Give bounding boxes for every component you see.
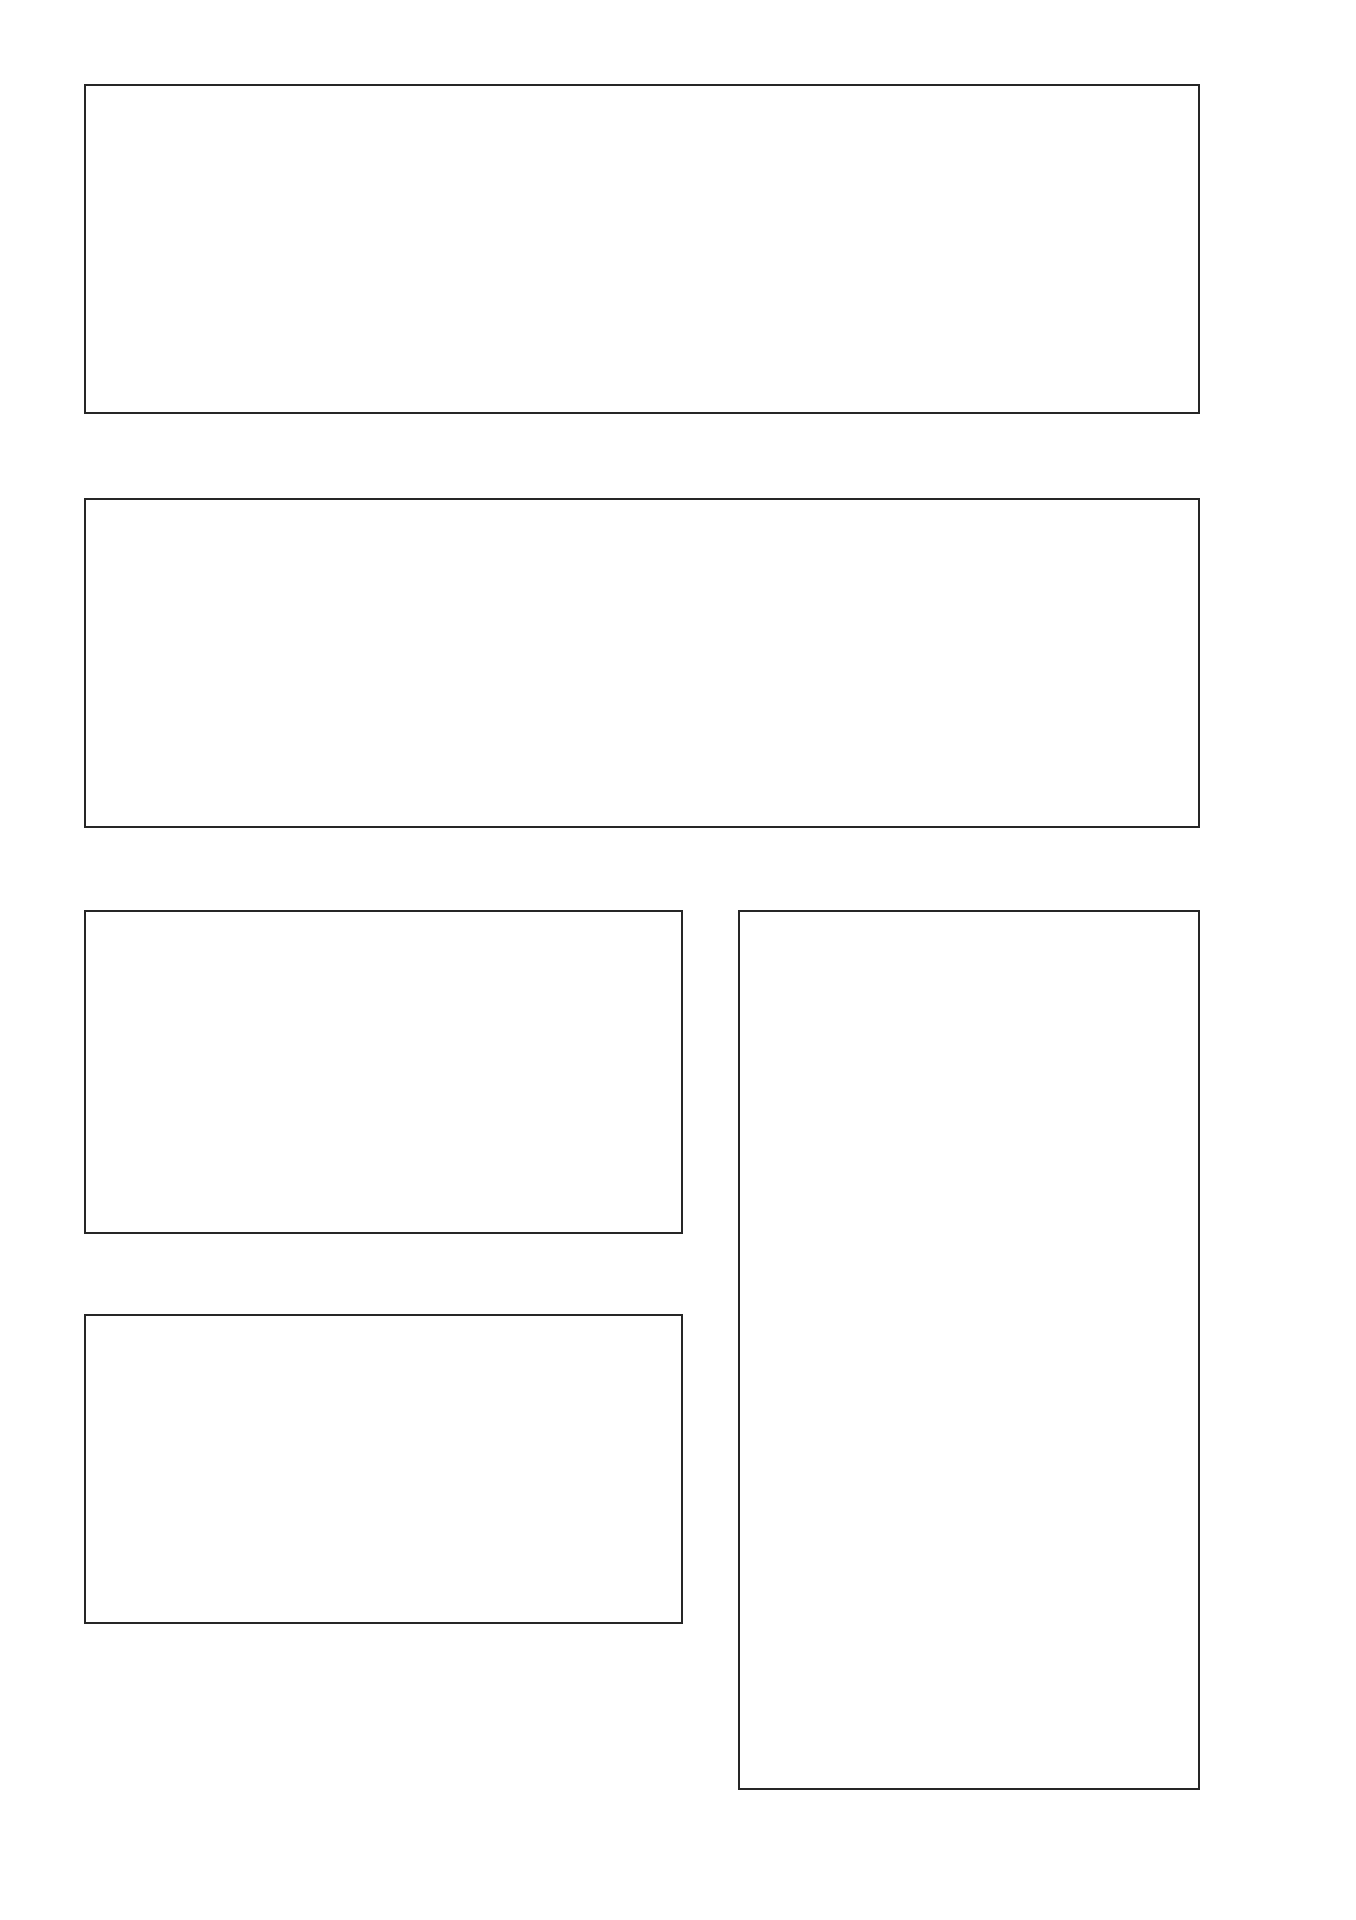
panel-ansicht-sued-ost <box>84 910 683 1234</box>
footer-bar <box>117 1836 1356 1897</box>
panel-ansicht-sued-west <box>84 84 1200 414</box>
presentation-board <box>0 0 1356 1920</box>
drawing-ansicht-sued-west <box>86 86 1198 412</box>
panel-schnitt-bb <box>84 1314 683 1624</box>
drawing-ansicht-sued-ost <box>86 912 681 1232</box>
panel-positionsplan <box>738 910 1200 1790</box>
panel-schnitt-aa <box>84 498 1200 828</box>
drawing-positionsplan <box>740 912 1198 1788</box>
drawing-schnitt-bb <box>86 1316 681 1622</box>
drawing-schnitt-aa <box>86 500 1198 826</box>
